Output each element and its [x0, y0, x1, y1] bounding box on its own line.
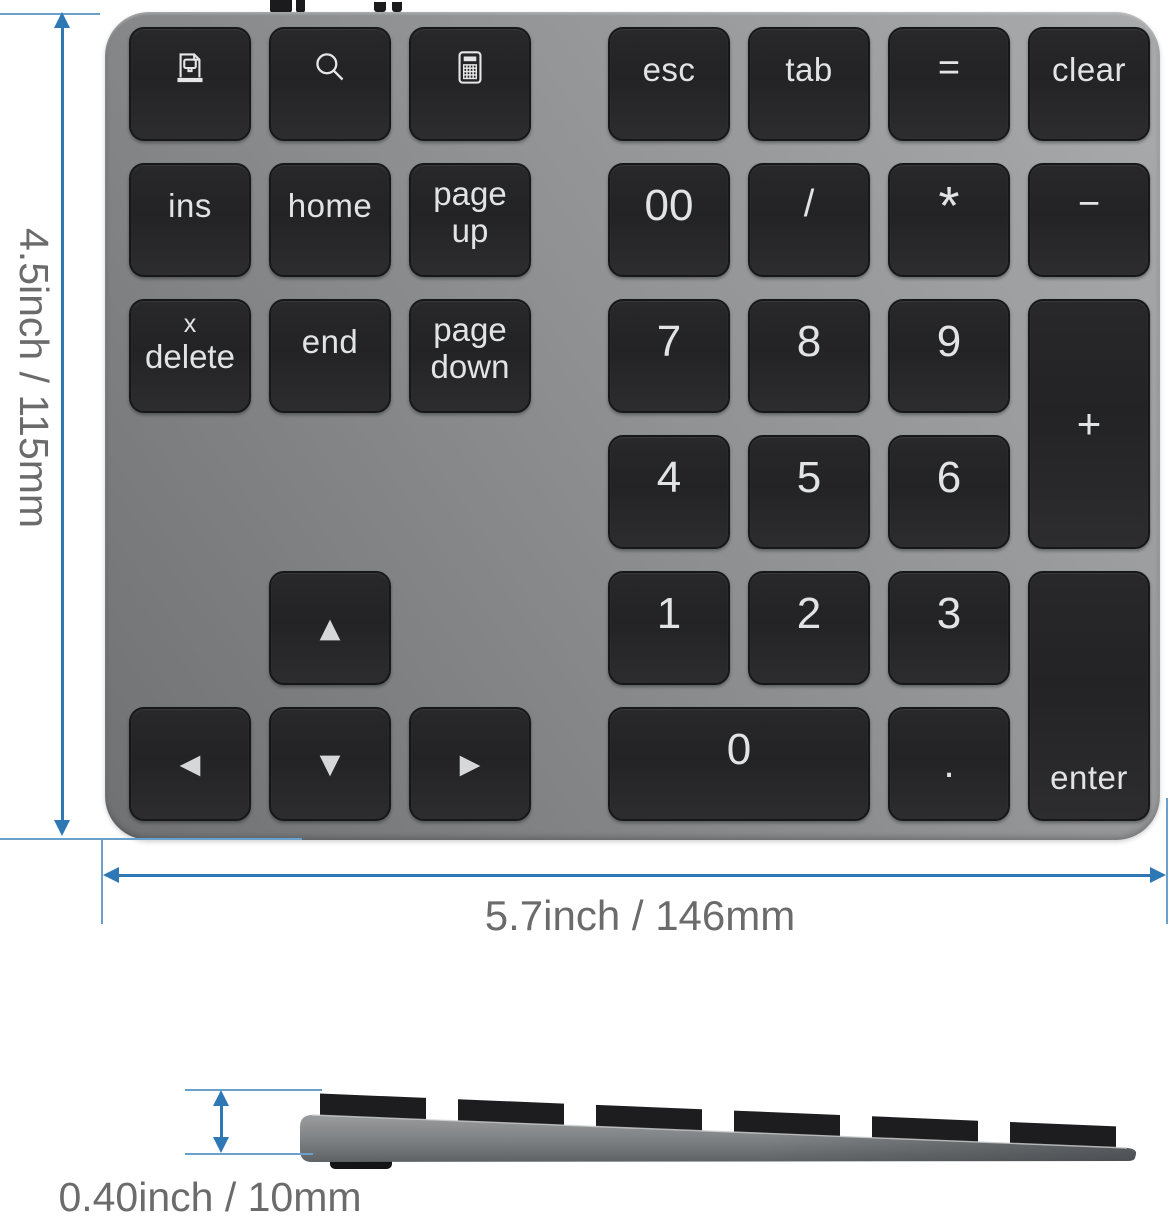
key-2[interactable]: 2	[748, 571, 870, 685]
key-label: end	[302, 323, 359, 361]
arrow-right-icon: ▶	[460, 749, 481, 780]
key-label: +	[1077, 400, 1102, 448]
key-label: 2	[797, 589, 821, 639]
key-clear[interactable]: clear	[1028, 27, 1150, 141]
key-arrow-up[interactable]: ▲	[269, 571, 391, 685]
key-label: 00	[645, 181, 694, 231]
keyboard-side-profile	[175, 1072, 1155, 1187]
key-8[interactable]: 8	[748, 299, 870, 413]
key-label: pagedown	[431, 311, 510, 385]
key-label: enter	[1050, 759, 1128, 797]
key-label: 9	[937, 317, 961, 367]
dimension-arrowhead	[54, 12, 70, 28]
key-label: ins	[168, 187, 212, 225]
key-home[interactable]: home	[269, 163, 391, 277]
key-double-zero[interactable]: 00	[608, 163, 730, 277]
key-label: esc	[643, 51, 696, 89]
key-label: /	[804, 183, 815, 226]
key-label: clear	[1052, 51, 1126, 89]
key-label: 3	[937, 589, 961, 639]
key-label: −	[1078, 183, 1100, 226]
connector-nub	[392, 2, 402, 12]
key-5[interactable]: 5	[748, 435, 870, 549]
key-label: *	[938, 175, 959, 237]
key-screen[interactable]	[129, 27, 251, 141]
key-enter[interactable]: enter	[1028, 571, 1150, 821]
key-arrow-left[interactable]: ◀	[129, 707, 251, 821]
key-calculator[interactable]	[409, 27, 531, 141]
thickness-dimension-label: 0.40inch / 10mm	[40, 1174, 380, 1221]
key-label: tab	[785, 51, 832, 89]
key-label: home	[288, 187, 373, 225]
key-9[interactable]: 9	[888, 299, 1010, 413]
key-plus[interactable]: +	[1028, 299, 1150, 549]
dimension-arrowhead	[54, 820, 70, 836]
key-label: 7	[657, 317, 681, 367]
height-dimension-line	[61, 18, 64, 828]
width-dimension-label: 5.7inch / 146mm	[330, 892, 950, 940]
key-0[interactable]: 0	[608, 707, 870, 821]
numeric-keypad-top-view: esc tab = clear ins home pageup 00 / * −…	[105, 12, 1160, 840]
key-label: 1	[657, 589, 681, 639]
height-extension-line-top	[0, 13, 100, 15]
key-multiply[interactable]: *	[888, 163, 1010, 277]
key-equals[interactable]: =	[888, 27, 1010, 141]
dimension-arrowhead	[213, 1137, 229, 1153]
height-dimension-label: 4.5inch / 115mm	[10, 228, 57, 528]
key-page-down[interactable]: pagedown	[409, 299, 531, 413]
arrow-down-icon: ▼	[320, 749, 341, 780]
connector-nub	[374, 2, 386, 12]
key-search[interactable]	[269, 27, 391, 141]
product-dimension-diagram: { "dimension_labels": { "height": "4.5in…	[0, 0, 1175, 1223]
key-label: =	[938, 47, 960, 90]
key-label: 4	[657, 453, 681, 503]
thickness-extension-line-top	[185, 1089, 322, 1091]
calculator-icon	[447, 45, 493, 91]
key-tab[interactable]: tab	[748, 27, 870, 141]
dimension-arrowhead	[1150, 867, 1166, 883]
key-3[interactable]: 3	[888, 571, 1010, 685]
key-delete[interactable]: xdelete	[129, 299, 251, 413]
key-7[interactable]: 7	[608, 299, 730, 413]
dimension-arrowhead	[103, 867, 119, 883]
key-decimal[interactable]: .	[888, 707, 1010, 821]
key-label: 8	[797, 317, 821, 367]
screen-print-icon	[167, 45, 213, 91]
key-label: .	[943, 742, 954, 787]
arrow-left-icon: ◀	[180, 749, 201, 780]
key-page-up[interactable]: pageup	[409, 163, 531, 277]
key-divide[interactable]: /	[748, 163, 870, 277]
key-esc[interactable]: esc	[608, 27, 730, 141]
key-arrow-right[interactable]: ▶	[409, 707, 531, 821]
search-icon	[307, 45, 353, 91]
key-label: 5	[797, 453, 821, 503]
key-label: xdelete	[145, 311, 235, 375]
arrow-up-icon: ▲	[320, 613, 341, 644]
key-label: 6	[937, 453, 961, 503]
key-4[interactable]: 4	[608, 435, 730, 549]
key-label: 0	[727, 725, 751, 775]
key-6[interactable]: 6	[888, 435, 1010, 549]
thickness-extension-line-bottom	[185, 1153, 313, 1155]
height-extension-line-bottom	[0, 838, 302, 840]
key-label: pageup	[433, 175, 506, 249]
key-ins[interactable]: ins	[129, 163, 251, 277]
dimension-arrowhead	[213, 1090, 229, 1106]
width-extension-line-right	[1166, 798, 1168, 924]
width-dimension-line	[114, 874, 1156, 877]
key-end[interactable]: end	[269, 299, 391, 413]
key-1[interactable]: 1	[608, 571, 730, 685]
key-minus[interactable]: −	[1028, 163, 1150, 277]
key-arrow-down[interactable]: ▼	[269, 707, 391, 821]
